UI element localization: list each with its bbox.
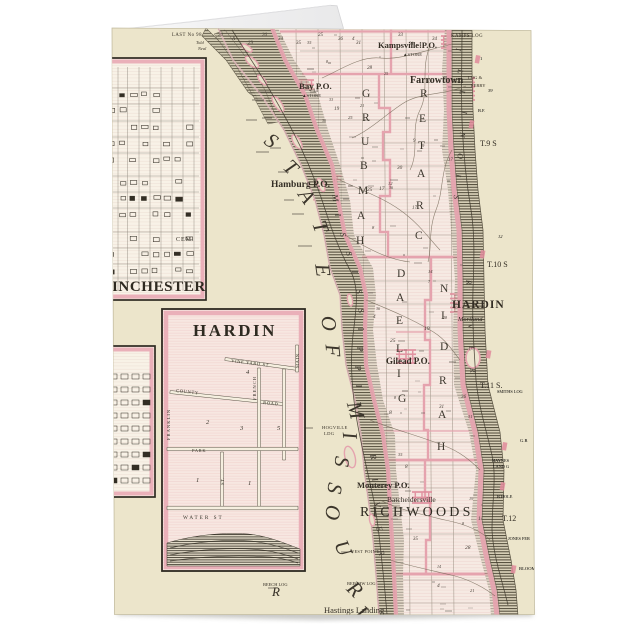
svg-text:R: R [420,88,428,100]
svg-text:28: 28 [367,65,373,71]
svg-text:A: A [417,168,426,180]
svg-text:LDG: LDG [324,431,335,436]
svg-text:HAYNES: HAYNES [492,458,510,463]
svg-text:HARDIN: HARDIN [193,321,277,340]
svg-text:21: 21 [360,103,364,108]
svg-text:G.R: G.R [520,438,528,443]
svg-text:35: 35 [296,41,302,46]
svg-text:17: 17 [448,158,453,163]
svg-text:LAST No 98: LAST No 98 [172,33,202,38]
svg-text:21: 21 [470,588,474,593]
svg-text:MAIN: MAIN [295,353,300,368]
svg-text:HOGVILLE: HOGVILLE [322,425,348,430]
svg-text:E: E [467,344,476,351]
svg-text:36: 36 [461,394,467,400]
svg-text:T.9 S: T.9 S [480,139,497,148]
svg-text:T.12: T.12 [502,514,516,523]
svg-text:1: 1 [248,480,251,487]
svg-text:T.11 S.: T.11 S. [480,381,502,390]
svg-text:31: 31 [356,41,361,46]
svg-text:C: C [415,230,423,242]
svg-text:U: U [361,136,370,148]
svg-text:BEECH LOG: BEECH LOG [263,582,288,587]
svg-text:35: 35 [413,537,418,542]
svg-text:25: 25 [384,71,388,76]
svg-text:19: 19 [424,326,430,332]
svg-text:25: 25 [348,115,353,120]
svg-text:Told: Told [196,40,204,45]
svg-text:14: 14 [437,564,441,569]
svg-text:Monterey P.O.: Monterey P.O. [357,480,410,490]
svg-text:34: 34 [278,37,284,42]
svg-text:WATER ST: WATER ST [183,515,224,521]
svg-text:28: 28 [465,545,471,551]
svg-text:E: E [419,113,426,125]
svg-text:Neal: Neal [197,46,207,51]
svg-text:T.10 S: T.10 S [487,260,508,269]
svg-text:Hastings Landing: Hastings Landing [324,605,385,615]
svg-text:4: 4 [437,582,440,589]
svg-text:O: O [455,153,464,160]
svg-text:29: 29 [248,41,254,46]
svg-text:JONES FER: JONES FER [508,536,530,541]
svg-text:M: M [358,185,368,197]
svg-text:▲STORE: ▲STORE [403,52,422,57]
svg-text:Hamburg P.O.: Hamburg P.O. [271,180,330,190]
svg-text:G: G [362,88,370,100]
svg-text:O: O [320,504,345,521]
svg-text:17: 17 [379,186,385,192]
svg-text:LAND G: LAND G [493,464,509,469]
svg-text:O: O [316,315,341,332]
svg-text:25: 25 [390,338,396,344]
svg-text:▲STORE: ▲STORE [302,93,321,98]
svg-text:I: I [397,368,401,380]
svg-text:T: T [418,140,425,152]
svg-text:30: 30 [322,118,326,123]
svg-text:D: D [440,341,448,353]
svg-text:R: R [464,278,473,285]
svg-text:8: 8 [389,410,392,416]
svg-text:INCHESTER: INCHESTER [112,279,206,295]
svg-text:A: A [438,409,447,421]
svg-text:E: E [396,315,403,327]
svg-text:A: A [396,292,405,304]
svg-text:R: R [468,366,477,373]
svg-text:36: 36 [338,37,344,42]
svg-text:A: A [357,210,366,222]
svg-text:Gilead P.O.: Gilead P.O. [386,356,430,366]
svg-text:Farrowtown: Farrowtown [410,75,464,86]
svg-text:H: H [437,441,445,453]
svg-text:19: 19 [334,106,340,112]
svg-text:25: 25 [318,33,324,38]
svg-text:I: I [441,310,445,322]
svg-text:33: 33 [329,97,333,102]
svg-text:WEST POINT: WEST POINT [350,549,379,554]
svg-text:B: B [360,160,368,172]
svg-text:30: 30 [397,165,403,171]
svg-text:D: D [397,268,405,280]
svg-text:20: 20 [218,33,224,38]
svg-text:39: 39 [488,88,493,93]
svg-text:F: F [320,342,345,358]
svg-text:8: 8 [405,464,408,470]
svg-text:FERRY: FERRY [471,83,486,88]
svg-text:ST.: ST. [220,477,225,485]
svg-text:8: 8 [394,395,396,400]
svg-text:N: N [440,283,449,295]
svg-text:LOG &: LOG & [468,75,483,80]
svg-text:H: H [356,235,364,247]
svg-text:Mortland: Mortland [457,316,483,323]
svg-text:33: 33 [398,33,404,38]
svg-text:1: 1 [196,477,199,484]
svg-text:Batcheldersville: Batcheldersville [387,495,436,504]
svg-text:HARDIN: HARDIN [452,299,505,311]
svg-text:Kampsville⁝P.O.: Kampsville⁝P.O. [378,40,437,50]
svg-text:FRANKLIN: FRANKLIN [166,409,171,440]
svg-text:FRENCH: FRENCH [252,376,257,400]
svg-text:G: G [398,393,406,405]
svg-text:L: L [396,343,403,355]
svg-text:R: R [416,200,424,212]
svg-text:8: 8 [326,59,328,64]
svg-text:RICHWOODS: RICHWOODS [360,505,474,520]
svg-text:31: 31 [468,414,472,419]
svg-text:S: S [452,195,461,200]
svg-text:14: 14 [428,269,433,274]
svg-text:PARK: PARK [192,448,206,453]
svg-text:Bay P.O.: Bay P.O. [299,81,332,91]
svg-text:BEECHW LOG: BEECHW LOG [347,581,376,586]
svg-text:26: 26 [262,33,268,38]
svg-text:CEM.: CEM. [176,237,195,243]
svg-text:B.F.: B.F. [478,108,485,113]
svg-text:BLOOM: BLOOM [519,566,536,571]
svg-text:B HOLE: B HOLE [497,494,513,499]
svg-text:R: R [439,375,447,387]
svg-text:KAMPS LOG: KAMPS LOG [451,34,483,39]
svg-text:R: R [362,112,370,124]
